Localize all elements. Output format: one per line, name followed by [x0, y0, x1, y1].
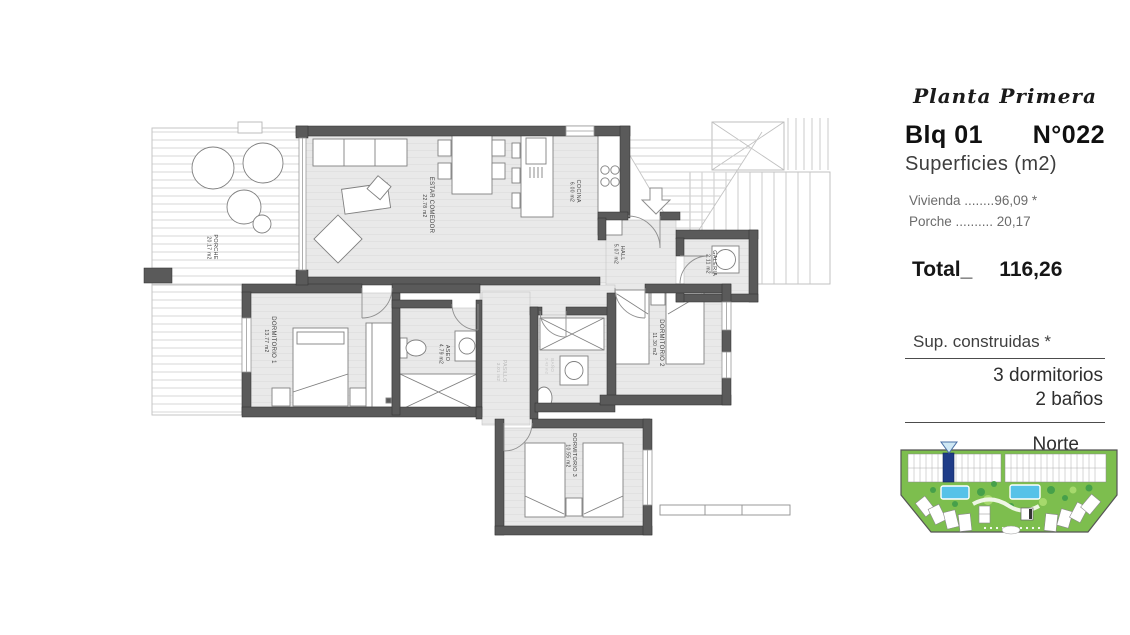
room-label-porche: PORCHE 20.17 m2 [206, 234, 219, 261]
surface-row-vivienda: Vivienda ........96,09 * [909, 191, 1105, 212]
unit-number: N°022 [1033, 121, 1105, 150]
bedrooms-count: 3 dormitorios [905, 364, 1103, 388]
site-plan-thumbnail [893, 440, 1125, 545]
dot-leader: ........ [961, 193, 995, 208]
room-label-cocina: COCINA 6.00 m2 [569, 180, 582, 205]
vivienda-value: 96,09 * [994, 193, 1037, 208]
block-unit-row: Blq 01 N°022 [905, 121, 1105, 150]
room-label-aseo: ASEO 4.79 m2 [438, 344, 451, 364]
total-value: 116,26 [999, 258, 1062, 282]
block-label: Blq 01 [905, 121, 983, 150]
surfaces-heading: Superficies (m2) [905, 153, 1105, 176]
total-label: Total_ [912, 258, 972, 282]
dot-leader: .......... [952, 214, 997, 229]
surface-rows: Vivienda ........96,09 * Porche ........… [905, 191, 1105, 233]
built-surface-note: Sup. construidas * [905, 332, 1105, 359]
page: PORCHE 20.17 m2 ESTAR COMEDOR 22.78 m2 C… [0, 0, 1130, 635]
total-row: Total_ 116,26 [905, 258, 1105, 282]
room-label-bano: BAÑO 3.43 m2 [545, 358, 557, 375]
room-label-pasillo: PASILLO 3.01 m2 [496, 360, 507, 384]
program-block: 3 dormitorios 2 baños [905, 359, 1105, 424]
plan-title: Planta Primera [905, 84, 1105, 108]
info-panel: Planta Primera Blq 01 N°022 Superficies … [905, 84, 1105, 491]
unit-location-highlight [943, 453, 954, 482]
bathrooms-count: 2 baños [905, 388, 1103, 412]
entrance-arrow-icon [642, 188, 670, 214]
room-label-galeria: GALERIA 2.11 m2 [705, 250, 718, 277]
porche-value: 20,17 [997, 214, 1031, 229]
floor-plan: PORCHE 20.17 m2 ESTAR COMEDOR 22.78 m2 C… [0, 0, 860, 635]
surface-row-porche: Porche .......... 20,17 [909, 212, 1105, 233]
room-label-hall: HALL 5.07 m2 [613, 244, 626, 264]
